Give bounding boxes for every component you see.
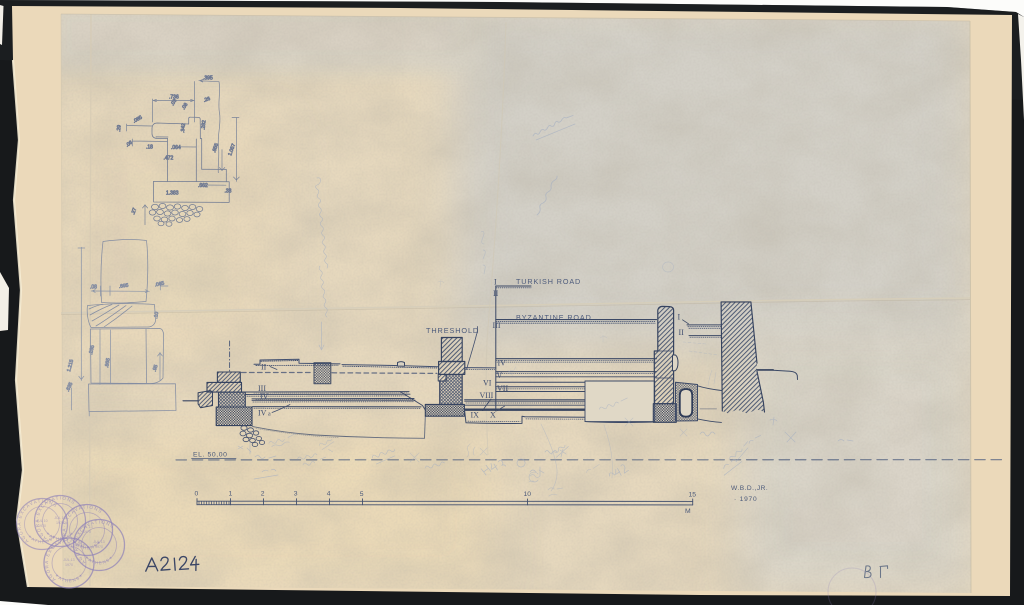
svg-text:.29: .29 bbox=[116, 125, 123, 133]
svg-text:I: I bbox=[494, 277, 497, 286]
svg-text:2: 2 bbox=[261, 491, 265, 498]
svg-text:10: 10 bbox=[524, 491, 532, 498]
svg-text:· 1970: · 1970 bbox=[734, 496, 758, 503]
svg-text:1970: 1970 bbox=[38, 524, 46, 528]
svg-text:1.383: 1.383 bbox=[166, 191, 179, 197]
svg-text:1970: 1970 bbox=[83, 530, 91, 534]
svg-text:.08: .08 bbox=[90, 285, 97, 291]
svg-text:JUL 10: JUL 10 bbox=[54, 516, 65, 520]
svg-text:.395: .395 bbox=[203, 76, 213, 82]
svg-text:1: 1 bbox=[229, 490, 233, 497]
svg-text:.662: .662 bbox=[198, 183, 208, 189]
svg-text:EL. 50,00: EL. 50,00 bbox=[193, 452, 228, 459]
svg-text:IV: IV bbox=[260, 392, 269, 401]
svg-text:.282: .282 bbox=[201, 120, 208, 131]
svg-text:X: X bbox=[490, 411, 496, 420]
svg-text:W.B.D.,JR.: W.B.D.,JR. bbox=[731, 485, 768, 492]
svg-text:IV: IV bbox=[258, 409, 267, 418]
svg-text:THRESHOLD: THRESHOLD bbox=[426, 326, 479, 335]
svg-text:.472: .472 bbox=[164, 156, 174, 162]
svg-text:.10: .10 bbox=[153, 311, 160, 319]
svg-text:II: II bbox=[493, 289, 499, 298]
svg-text:V: V bbox=[497, 371, 503, 380]
svg-text:II: II bbox=[679, 328, 685, 337]
svg-text:VII: VII bbox=[497, 384, 508, 393]
svg-text:M: M bbox=[685, 508, 691, 515]
svg-text:VIII: VIII bbox=[480, 391, 494, 400]
svg-text:3: 3 bbox=[294, 491, 298, 498]
svg-text:I: I bbox=[678, 312, 681, 321]
svg-text:VI: VI bbox=[483, 378, 492, 387]
svg-text:0: 0 bbox=[195, 490, 199, 497]
svg-text:BYZANTINE ROAD: BYZANTINE ROAD bbox=[516, 313, 592, 322]
svg-text:JUL 10: JUL 10 bbox=[36, 519, 47, 523]
svg-text:15: 15 bbox=[689, 491, 697, 498]
svg-text:IX: IX bbox=[471, 411, 480, 420]
svg-text:IV: IV bbox=[498, 359, 507, 368]
svg-text:1970: 1970 bbox=[65, 563, 73, 567]
svg-text:II: II bbox=[261, 363, 267, 372]
svg-text:.342: .342 bbox=[180, 123, 187, 134]
svg-text:JUL 13: JUL 13 bbox=[93, 540, 104, 544]
svg-text:5: 5 bbox=[360, 491, 364, 498]
svg-text:1970: 1970 bbox=[56, 521, 64, 525]
svg-text:.064: .064 bbox=[171, 145, 181, 151]
svg-text:a: a bbox=[268, 412, 271, 418]
svg-text:.18: .18 bbox=[146, 145, 153, 151]
svg-text:1970: 1970 bbox=[95, 545, 103, 549]
svg-text:.33: .33 bbox=[225, 188, 232, 194]
svg-text:JUL 13: JUL 13 bbox=[63, 558, 74, 562]
svg-text:III: III bbox=[493, 321, 501, 330]
svg-text:JUL 13: JUL 13 bbox=[81, 525, 92, 529]
svg-text:4: 4 bbox=[327, 491, 331, 498]
svg-text:TURKISH ROAD: TURKISH ROAD bbox=[516, 277, 581, 286]
